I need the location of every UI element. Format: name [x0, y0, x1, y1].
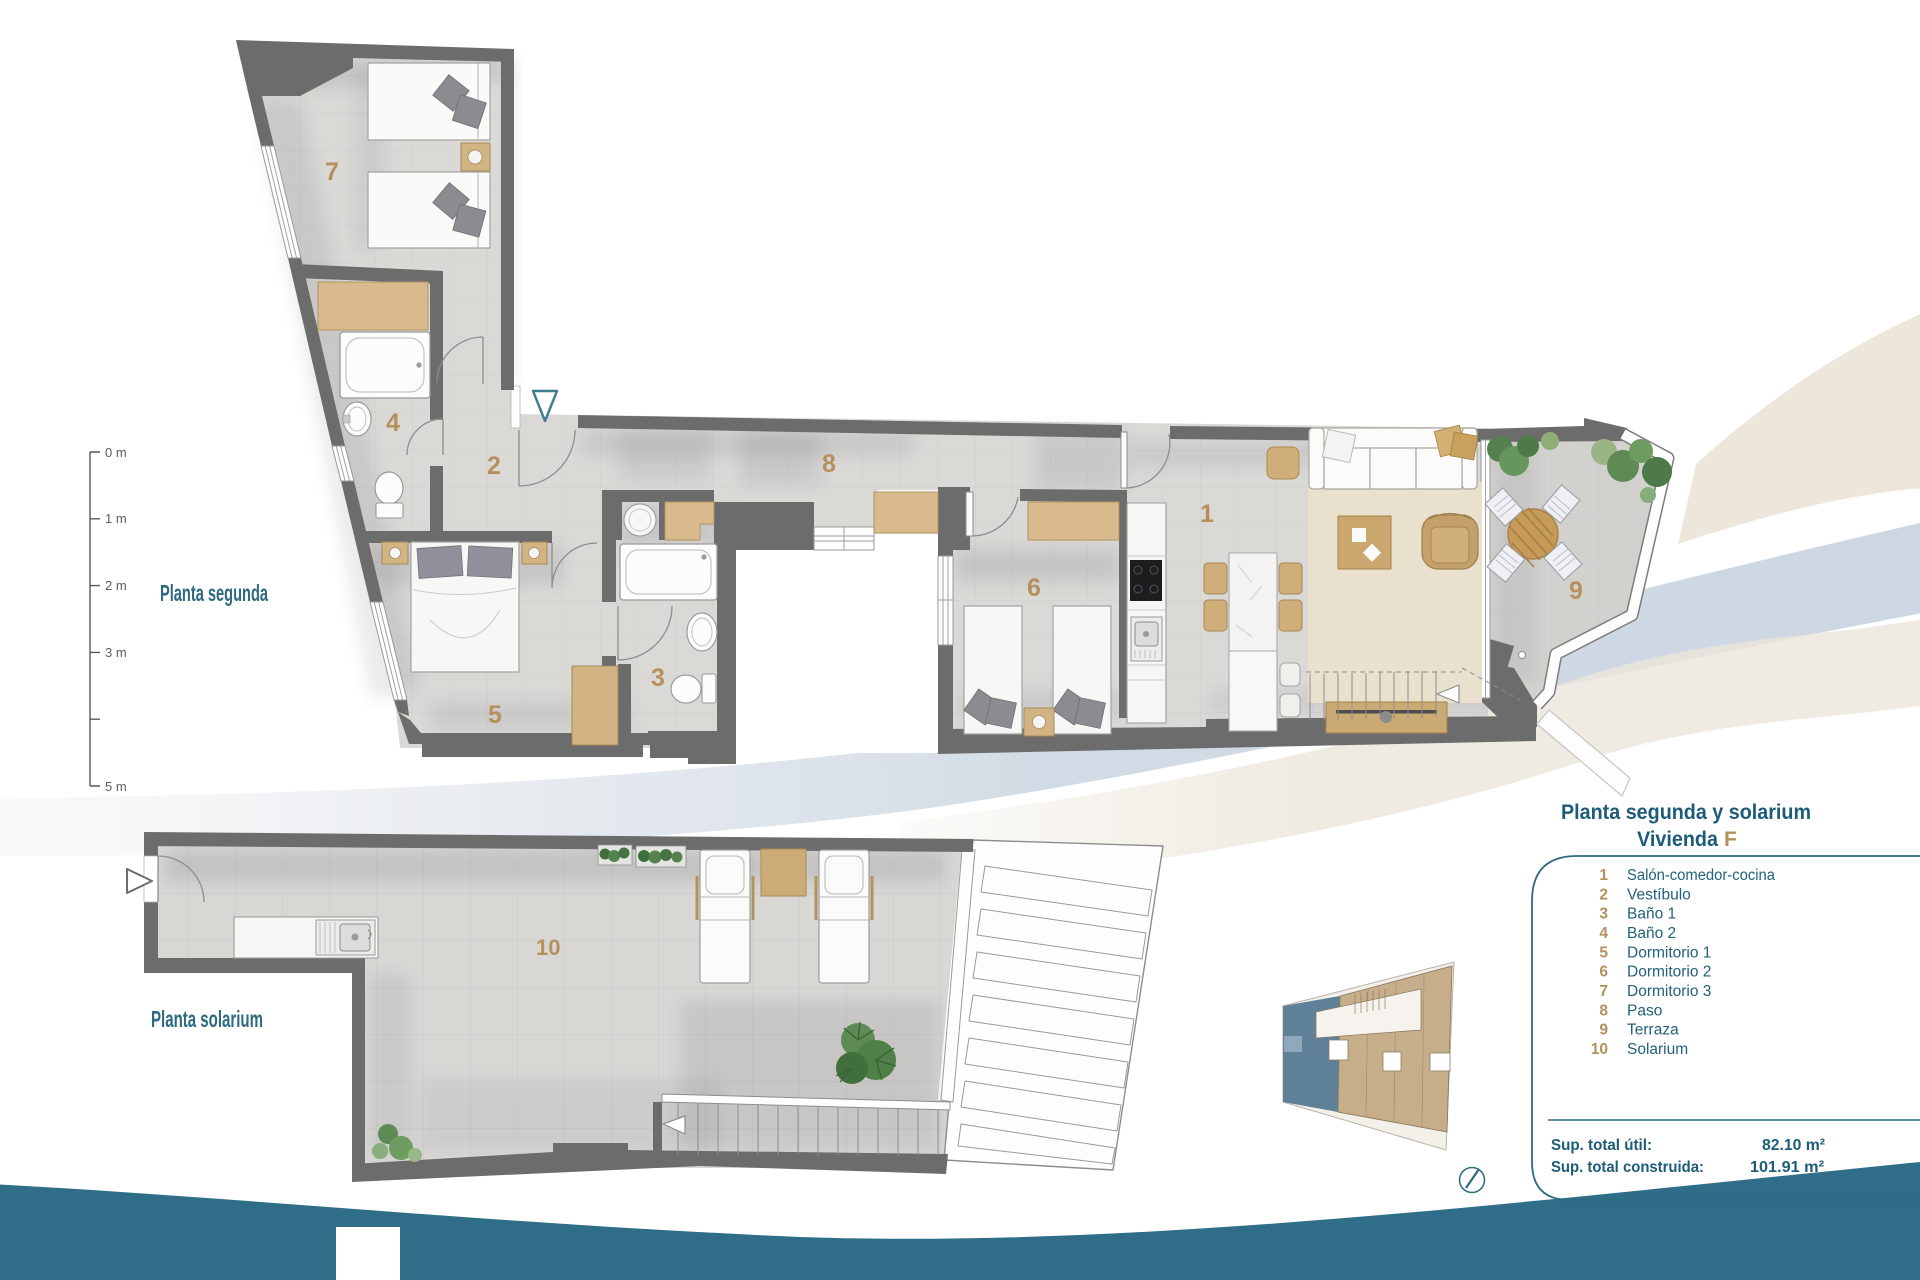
svg-text:82.10 m²: 82.10 m² — [1762, 1137, 1825, 1154]
svg-text:3 m: 3 m — [105, 645, 127, 660]
svg-text:Sup. total construida:: Sup. total construida: — [1551, 1159, 1704, 1176]
svg-text:9: 9 — [1569, 577, 1583, 605]
svg-text:5 m: 5 m — [105, 779, 127, 794]
svg-text:Baño 1: Baño 1 — [1627, 906, 1676, 923]
svg-text:10: 10 — [536, 935, 560, 960]
svg-text:Vivienda: Vivienda — [1637, 828, 1718, 851]
svg-text:1: 1 — [1599, 867, 1608, 884]
svg-text:Salón-comedor-cocina: Salón-comedor-cocina — [1627, 867, 1775, 884]
svg-text:8: 8 — [822, 450, 836, 478]
svg-text:5: 5 — [1599, 944, 1608, 961]
svg-text:Planta segunda: Planta segunda — [160, 580, 268, 606]
svg-text:10: 10 — [1591, 1041, 1608, 1058]
svg-text:4: 4 — [1599, 925, 1608, 942]
svg-text:2: 2 — [1599, 886, 1608, 903]
svg-text:Dormitorio 3: Dormitorio 3 — [1627, 983, 1711, 1000]
svg-text:0 m: 0 m — [105, 445, 127, 460]
svg-text:3: 3 — [1599, 906, 1608, 923]
svg-text:2: 2 — [487, 452, 501, 480]
svg-text:8: 8 — [1599, 1002, 1608, 1019]
svg-text:6: 6 — [1027, 574, 1041, 602]
svg-text:Dormitorio 2: Dormitorio 2 — [1627, 964, 1711, 981]
svg-text:5: 5 — [488, 701, 502, 729]
svg-text:101.91 m²: 101.91 m² — [1750, 1159, 1824, 1176]
svg-text:Vestíbulo: Vestíbulo — [1627, 886, 1691, 903]
svg-text:F: F — [1724, 828, 1737, 851]
svg-text:Paso: Paso — [1627, 1002, 1662, 1019]
svg-text:Terraza: Terraza — [1627, 1022, 1679, 1039]
svg-text:Planta solarium: Planta solarium — [151, 1006, 263, 1032]
svg-text:1 m: 1 m — [105, 511, 127, 526]
svg-text:2 m: 2 m — [105, 578, 127, 593]
svg-text:Dormitorio 1: Dormitorio 1 — [1627, 944, 1711, 961]
svg-text:Baño 2: Baño 2 — [1627, 925, 1676, 942]
svg-text:1: 1 — [1200, 500, 1214, 528]
svg-text:7: 7 — [1599, 983, 1608, 1000]
svg-text:9: 9 — [1599, 1022, 1608, 1039]
svg-text:3: 3 — [651, 664, 665, 692]
svg-text:6: 6 — [1599, 964, 1608, 981]
svg-text:Solarium: Solarium — [1627, 1041, 1688, 1058]
svg-text:Sup. total útil:: Sup. total útil: — [1551, 1137, 1652, 1154]
svg-text:7: 7 — [325, 158, 339, 186]
svg-text:4: 4 — [386, 409, 400, 437]
svg-text:Planta segunda y solarium: Planta segunda y solarium — [1561, 801, 1811, 824]
